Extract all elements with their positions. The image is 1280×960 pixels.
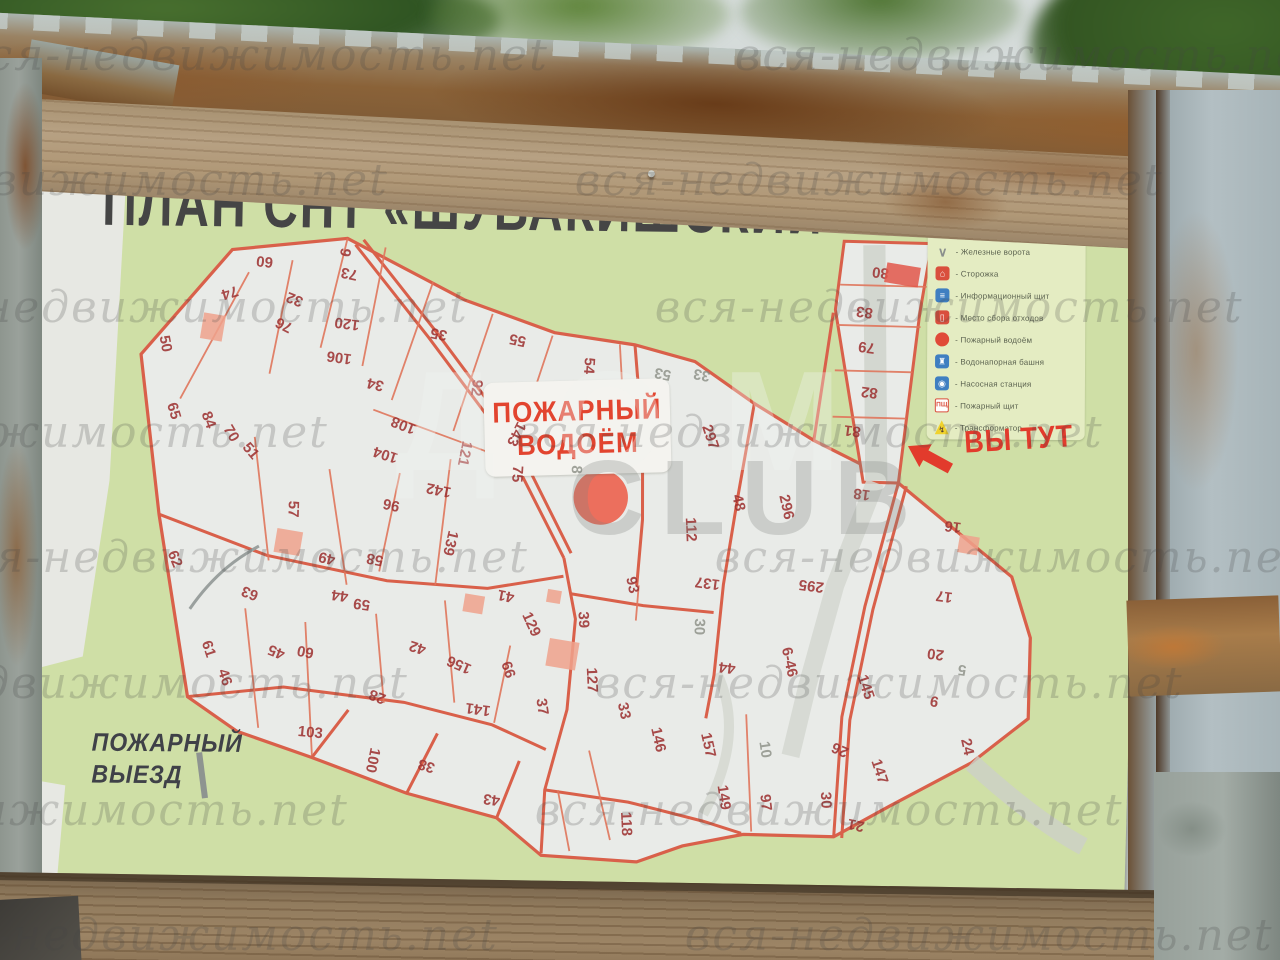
plot-number: 139 <box>439 529 461 557</box>
plot-number: 33 <box>692 365 712 385</box>
plot-number: 41 <box>496 586 516 606</box>
plot-number: 60 <box>296 642 316 662</box>
plot-number: 6-46 <box>778 646 801 679</box>
plot-number: 30 <box>817 791 835 808</box>
plot-number: 103 <box>297 723 324 742</box>
plot-number: 48 <box>728 493 748 513</box>
plot-number: 92 <box>467 378 486 397</box>
plot-number: 9 <box>929 692 941 710</box>
plot-number: 81 <box>843 421 862 440</box>
plot-number: 50 <box>156 334 176 354</box>
plot-number: 32 <box>284 288 306 310</box>
building-marker <box>545 638 579 671</box>
plot-number: 142 <box>425 479 453 501</box>
plot-number: 149 <box>714 784 735 811</box>
plot-number: 60 <box>255 252 274 271</box>
plot-number: 118 <box>617 811 635 836</box>
plot-number: 74 <box>219 282 240 303</box>
plot-number: 24 <box>957 737 977 757</box>
plot-number: 84 <box>198 409 220 431</box>
building-marker <box>884 262 921 287</box>
plot-number: 43 <box>482 790 501 809</box>
plot-number: 9 <box>336 247 354 259</box>
plot-number: 296 <box>775 493 797 521</box>
plot-number: 57 <box>284 501 301 518</box>
plot-number: 147 <box>867 757 891 786</box>
plot-number: 44 <box>718 658 737 677</box>
plot-number: 45 <box>266 641 288 663</box>
plot-number: 39 <box>575 611 593 628</box>
plot-number: 121 <box>454 440 476 468</box>
building-marker <box>462 593 485 614</box>
plot-number: 127 <box>583 667 601 693</box>
plot-number: 65 <box>163 401 184 422</box>
plot-number: 26 <box>829 738 851 760</box>
plot-number: 75 <box>508 465 526 483</box>
plot-number: 8 <box>568 465 585 474</box>
plot-number: 146 <box>647 726 669 754</box>
plot-number: 59 <box>352 594 371 613</box>
building-marker <box>546 588 562 603</box>
plot-number: 46 <box>214 667 235 688</box>
plot-number: 66 <box>497 659 518 680</box>
concrete-block <box>1154 772 1280 960</box>
plot-number: 53 <box>653 364 673 384</box>
plot-number: 141 <box>464 699 491 719</box>
plot-number: 51 <box>239 439 263 463</box>
plot-number: 145 <box>854 673 878 702</box>
building-marker <box>200 312 226 341</box>
plot-number: 100 <box>362 746 384 774</box>
plot-number: 157 <box>697 731 719 759</box>
plot-number: 297 <box>698 422 722 451</box>
plot-number: 106 <box>326 347 353 367</box>
plot-number: 30 <box>691 618 708 635</box>
plot-number: 38 <box>416 755 437 776</box>
photo-of-map-board: ПЛАН СНТ «ШУВАКИШСКИЙ» Условные обозначе… <box>0 0 1280 960</box>
map-poster: ПЛАН СНТ «ШУВАКИШСКИЙ» Условные обозначе… <box>6 130 1143 911</box>
plot-number: 28 <box>366 685 388 707</box>
plot-number: 156 <box>444 652 474 678</box>
dark-object-bottom-left <box>0 896 82 960</box>
plot-number: 20 <box>926 644 945 663</box>
plot-number: 63 <box>239 582 261 604</box>
plot-number: 42 <box>407 637 428 658</box>
plot-number: 37 <box>532 697 551 716</box>
building-marker <box>957 534 980 555</box>
plot-number: 54 <box>580 357 598 375</box>
plot-number: 18 <box>852 484 871 503</box>
plot-number: 83 <box>855 302 874 321</box>
plot-number: 112 <box>682 517 700 542</box>
plot-number: 16 <box>944 517 963 536</box>
plot-number: 104 <box>371 443 400 467</box>
plot-number: 58 <box>365 549 385 569</box>
plot-number: 21 <box>846 815 866 835</box>
plot-number: 70 <box>220 422 243 445</box>
plot-number: 5 <box>957 661 967 679</box>
plot-number: 295 <box>798 576 825 596</box>
plot-number: 79 <box>857 338 876 357</box>
plot-number: 61 <box>198 638 219 659</box>
plot-number: 17 <box>935 587 954 606</box>
plot-number: 33 <box>614 701 634 721</box>
plot-number: 44 <box>331 586 350 605</box>
plot-number: 97 <box>756 793 775 812</box>
plot-number: 137 <box>694 573 721 593</box>
plot-number: 93 <box>622 575 642 595</box>
plot-number: 120 <box>334 313 361 333</box>
plot-number: 62 <box>164 548 186 570</box>
plot-number: 73 <box>339 264 359 284</box>
plot-number: 35 <box>429 324 449 344</box>
plot-number: 55 <box>508 330 528 350</box>
plot-number: 108 <box>389 412 419 437</box>
building-marker <box>274 528 304 556</box>
plot-number: 143 <box>503 419 529 449</box>
plot-number: 96 <box>381 495 401 515</box>
plot-number: 82 <box>860 383 879 402</box>
rusty-crossbar-right <box>1126 595 1280 696</box>
plot-number: 34 <box>365 374 385 394</box>
rusty-post-left <box>0 58 42 960</box>
plot-number: 10 <box>755 740 774 759</box>
plot-number: 129 <box>518 609 544 639</box>
plot-number: 49 <box>317 548 337 568</box>
plot-number: 76 <box>273 313 296 336</box>
plot-numbers-layer: 5065748470516076327391201063435559254108… <box>6 130 1143 911</box>
